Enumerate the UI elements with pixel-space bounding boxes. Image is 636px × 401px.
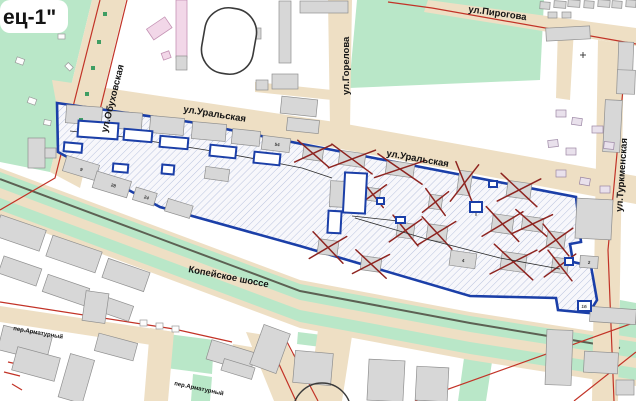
map-canvas: ец-1" ул.Уральская ул.Уральская ул.Горел…: [0, 0, 636, 401]
building-number: 1б: [581, 303, 587, 309]
city-plan-map: ец-1" ул.Уральская ул.Уральская ул.Горел…: [0, 0, 636, 401]
map-title-fragment: ец-1": [3, 6, 56, 29]
street-label-gorelova: ул.Горелова: [341, 36, 352, 95]
